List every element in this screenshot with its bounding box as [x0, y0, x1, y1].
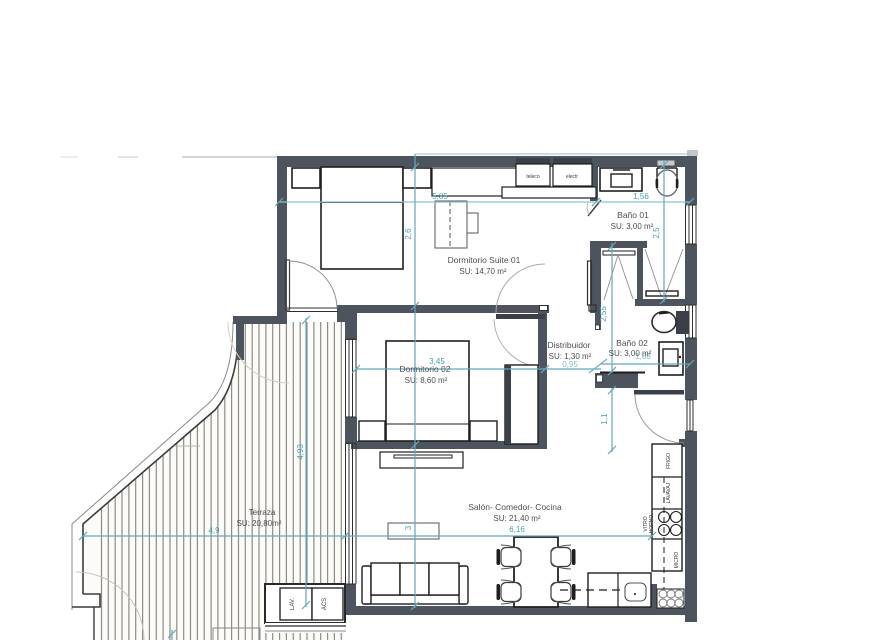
svg-text:teleco: teleco: [526, 174, 540, 180]
svg-text:Baño 02: Baño 02: [616, 338, 648, 348]
svg-text:SU: 8,60 m²: SU: 8,60 m²: [405, 376, 448, 385]
svg-text:HORNO: HORNO: [649, 515, 655, 534]
svg-text:4,9: 4,9: [208, 526, 220, 535]
svg-text:Baño 01: Baño 01: [617, 210, 649, 220]
svg-text:0,95: 0,95: [562, 360, 578, 369]
svg-text:SU: 20,80m²: SU: 20,80m²: [237, 519, 282, 528]
svg-text:1,56: 1,56: [633, 192, 649, 201]
svg-text:SU: 3,00 m²: SU: 3,00 m²: [611, 222, 654, 231]
svg-text:electr: electr: [566, 174, 579, 180]
svg-text:SU: 1,30 m²: SU: 1,30 m²: [549, 352, 592, 361]
svg-text:LAV.: LAV.: [290, 598, 296, 610]
svg-text:3: 3: [404, 525, 413, 530]
svg-text:SU: 21,40 m²: SU: 21,40 m²: [493, 514, 540, 523]
svg-text:LAVAVAJ: LAVAVAJ: [666, 482, 672, 503]
svg-text:SU: 3,00 m²: SU: 3,00 m²: [609, 349, 652, 358]
svg-text:1,1: 1,1: [600, 413, 609, 425]
svg-text:2,55: 2,55: [599, 306, 608, 322]
svg-text:SU: 14,70 m²: SU: 14,70 m²: [459, 267, 506, 276]
svg-text:Terraza: Terraza: [249, 508, 276, 517]
svg-text:5,85: 5,85: [432, 192, 448, 201]
svg-text:Dormitorio 02: Dormitorio 02: [399, 364, 450, 374]
svg-text:ACS: ACS: [322, 598, 328, 610]
svg-text:Salón- Comedor- Cocina: Salón- Comedor- Cocina: [468, 502, 562, 512]
svg-text:2,6: 2,6: [404, 228, 413, 240]
svg-text:MICRO: MICRO: [674, 552, 680, 569]
svg-text:Dormitorio Suite 01: Dormitorio Suite 01: [448, 255, 521, 265]
svg-text:2,5: 2,5: [652, 227, 661, 239]
svg-text:6,16: 6,16: [509, 525, 525, 534]
svg-text:FRIGO: FRIGO: [666, 453, 672, 469]
svg-text:4,93: 4,93: [296, 444, 305, 460]
svg-text:Distribuidor: Distribuidor: [548, 340, 591, 350]
